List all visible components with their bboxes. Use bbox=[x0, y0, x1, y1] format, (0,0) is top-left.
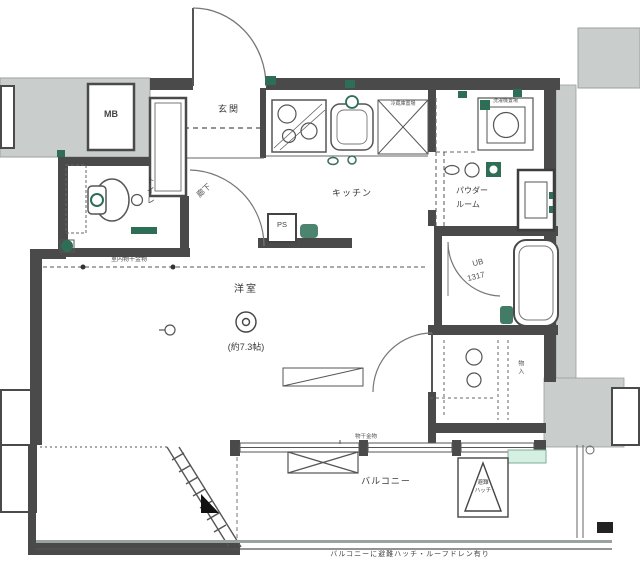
closet-hanger-pipe bbox=[430, 340, 508, 420]
shower-icon bbox=[500, 306, 513, 324]
counter-desk-icon bbox=[283, 368, 363, 386]
kitchen-label: キッチン bbox=[320, 188, 384, 198]
drying-bracket-label: 物干金物 bbox=[344, 434, 388, 440]
closet-door-arc bbox=[373, 333, 432, 392]
refrigerator-space-label: 冷蔵庫置場 bbox=[378, 102, 428, 108]
floor-plan: MB 玄関 廊下 トイレ キッチン PS 冷蔵庫置場 洗濯機置場 パウダー ルー… bbox=[0, 0, 640, 569]
meter-box-label: MB bbox=[95, 109, 127, 119]
main-room-label: 洋室 bbox=[216, 284, 276, 296]
drain-pipe-icon bbox=[577, 445, 594, 538]
main-room-size-label: (約7.3帖) bbox=[206, 342, 286, 352]
outlet-symbol bbox=[159, 325, 175, 335]
diagonal-partition-hatch bbox=[167, 447, 241, 547]
sink-icon bbox=[331, 96, 373, 150]
powder-room-label-line1: パウダー bbox=[440, 186, 504, 195]
balcony-step bbox=[508, 450, 546, 463]
closet-symbols bbox=[466, 349, 482, 387]
escape-hatch-label-line2: ハッチ bbox=[461, 488, 505, 494]
powder-room-label-line2: ルーム bbox=[440, 200, 496, 209]
cabinet-handle-icons bbox=[328, 156, 356, 165]
washing-machine-icon bbox=[478, 98, 533, 150]
entrance-label: 玄関 bbox=[204, 104, 254, 114]
water-heater-icon bbox=[300, 224, 318, 238]
storage-label: 物入 bbox=[516, 360, 523, 376]
vanity-icon bbox=[518, 170, 554, 230]
balcony-label: バルコニー bbox=[348, 476, 424, 486]
window-sashes bbox=[240, 443, 534, 452]
outdoor-unit-space-icon bbox=[288, 452, 358, 473]
washer-zone-dashes bbox=[436, 98, 478, 152]
shoe-cabinet bbox=[150, 98, 186, 196]
indoor-drying-label: 室内物干金物 bbox=[92, 257, 166, 264]
pipe-space-label: PS bbox=[268, 221, 296, 230]
powder-room-symbols bbox=[445, 162, 501, 177]
ceiling-light-symbol bbox=[236, 312, 256, 332]
ceiling-drop-line bbox=[43, 265, 428, 270]
bathtub-icon bbox=[514, 240, 558, 326]
footnote: バルコニーに避難ハッチ・ルーフドレン有り bbox=[290, 551, 530, 559]
drain-box bbox=[597, 522, 613, 533]
floor-plan-drawing bbox=[0, 0, 640, 569]
entrance-door-arc bbox=[193, 8, 266, 86]
washer-space-label: 洗濯機置場 bbox=[478, 99, 533, 105]
escape-hatch-label-line1: 避難 bbox=[461, 480, 505, 486]
stove-icon bbox=[272, 100, 326, 152]
refrigerator-space-icon bbox=[378, 100, 428, 154]
hallway-door-arc bbox=[190, 170, 264, 246]
toilet-label: トイレ bbox=[146, 176, 155, 206]
